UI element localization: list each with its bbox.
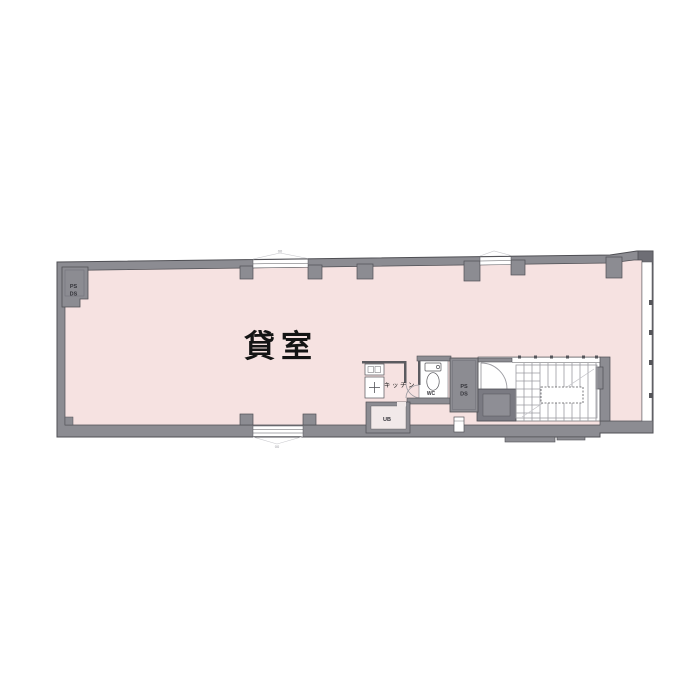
ub-label: UB: [383, 417, 391, 423]
vestibule-top-wall: [478, 358, 512, 362]
psds-top-left-ps-label: PS: [70, 284, 78, 290]
psds-box-core: PS DS: [450, 358, 478, 412]
elevator-shaft-inner: [483, 394, 510, 416]
wc-top-wall: [417, 356, 451, 361]
stove-symbol: [365, 364, 384, 375]
psds-core-ps-label: PS: [460, 384, 468, 390]
floor-plan-page: 00 00 PS DS: [0, 0, 700, 700]
kitchen-right-wall: [404, 361, 407, 383]
wc-left-wall: [418, 361, 421, 385]
wall-below-wc: [407, 398, 451, 404]
kitchen-top-wall: [362, 361, 404, 364]
tenant-room-label: 貸室: [244, 329, 318, 364]
window-tag-bottom: 00: [275, 444, 280, 449]
top-window-right: [480, 251, 511, 265]
right-window-band: [642, 262, 653, 421]
corner-step-bottom-left: [65, 417, 73, 425]
unit-bath: UB: [366, 402, 410, 433]
window-tag-top: 00: [278, 249, 283, 254]
psds-core-ds-label: DS: [460, 392, 468, 398]
stair-top-window: [512, 357, 600, 363]
floor-plan-drawing: 00 00 PS DS: [0, 0, 700, 700]
sink-symbol: [365, 377, 384, 398]
water-heater-fixture: [454, 417, 464, 432]
stair-core: [477, 356, 610, 422]
top-window-left: 00: [253, 249, 308, 268]
psds-top-left-ds-label: DS: [70, 292, 78, 298]
exterior-step-a: [505, 437, 555, 442]
wc-label: WC: [427, 391, 436, 397]
stair-landing: [541, 387, 583, 403]
exterior-step-b: [557, 437, 585, 440]
